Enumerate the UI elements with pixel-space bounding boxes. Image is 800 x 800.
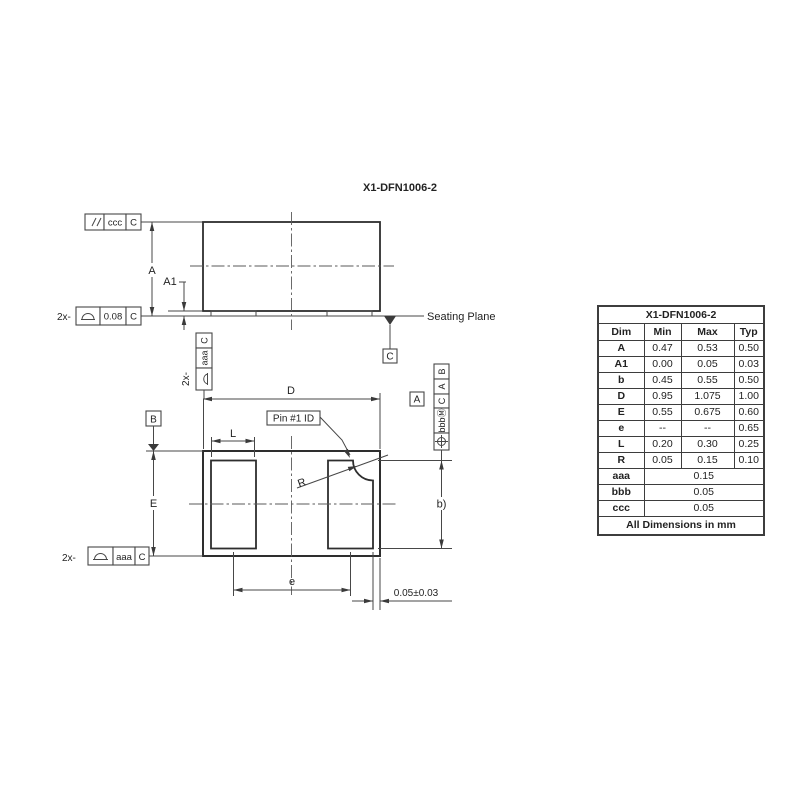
- datum-b-triangle: [148, 444, 159, 451]
- drawing-page: X1-DFN1006-2 A A1: [0, 0, 800, 800]
- datum-c-label: C: [386, 352, 393, 363]
- fcf-profile-seating-tol: 0.08: [104, 312, 123, 323]
- dimension-a: A: [145, 222, 159, 316]
- fcf-parallelism: ccc C: [85, 214, 141, 230]
- cell-min: 0.00: [644, 357, 681, 373]
- table-row: A1 0.00 0.05 0.03: [598, 357, 764, 373]
- dim-label-a1: A1: [163, 276, 176, 288]
- terminal-2-pad-with-pin1-notch: [328, 461, 373, 549]
- cell-dim: E: [598, 405, 644, 421]
- cell-min: 0.20: [644, 437, 681, 453]
- table-row: L 0.20 0.30 0.25: [598, 437, 764, 453]
- cell-dim: b: [598, 373, 644, 389]
- cell-typ: 0.50: [734, 373, 764, 389]
- fcf-parallelism-tol: ccc: [108, 218, 123, 229]
- dim-label-l: L: [230, 428, 236, 440]
- dimension-b: b): [378, 461, 452, 549]
- table-row: D 0.95 1.075 1.00: [598, 389, 764, 405]
- dim-label-b: b): [437, 499, 447, 511]
- cell-dim: R: [598, 453, 644, 469]
- cell-min: 0.47: [644, 341, 681, 357]
- cell-max: 0.675: [681, 405, 734, 421]
- cell-typ: 0.10: [734, 453, 764, 469]
- dim-label-d: D: [287, 385, 295, 397]
- fcf-position-datum1: C: [437, 397, 447, 404]
- datum-b-label: B: [150, 415, 157, 426]
- cell-max: --: [681, 421, 734, 437]
- dimension-a1: A1: [163, 276, 186, 330]
- table-title: X1-DFN1006-2: [598, 306, 764, 324]
- fcf-profile-side: 2x- aaa C: [181, 333, 212, 399]
- side-view: A A1 ccc C 2x- 0.08 C: [57, 212, 496, 363]
- col-header-typ: Typ: [734, 324, 764, 341]
- cell-dim: A: [598, 341, 644, 357]
- dimension-l: L: [212, 428, 255, 457]
- cell-typ: 0.60: [734, 405, 764, 421]
- drawing-title: X1-DFN1006-2: [363, 182, 437, 194]
- fcf-profile-bottom-count: 2x-: [62, 553, 76, 564]
- cell-tol-value: 0.05: [644, 485, 764, 501]
- table-row: R 0.05 0.15 0.10: [598, 453, 764, 469]
- seating-plane-datum: C Seating Plane: [383, 311, 496, 363]
- table-footer-row: All Dimensions in mm: [598, 517, 764, 536]
- table-header-row: Dim Min Max Typ: [598, 324, 764, 341]
- fcf-profile-seating-count: 2x-: [57, 312, 71, 323]
- side-view-extension-lines: [137, 222, 424, 316]
- fcf-profile-side-tol: aaa: [200, 350, 210, 365]
- dimension-offset: 0.05±0.03: [352, 552, 452, 610]
- table-row: e -- -- 0.65: [598, 421, 764, 437]
- cell-min: 0.55: [644, 405, 681, 421]
- cell-typ: 0.03: [734, 357, 764, 373]
- table-tolerance-row: aaa 0.15: [598, 469, 764, 485]
- dim-label-pitch: e: [289, 576, 295, 588]
- table-tolerance-row: bbb 0.05: [598, 485, 764, 501]
- terminal-1-pad: [211, 461, 256, 549]
- dim-label-e-body: E: [150, 498, 157, 510]
- bottom-view: 2x- aaa C D A Pin #1 ID: [62, 333, 452, 610]
- fcf-position-tol: bbbⓂ: [437, 408, 447, 432]
- dim-label-offset: 0.05±0.03: [394, 588, 439, 599]
- cell-typ: 0.65: [734, 421, 764, 437]
- col-header-max: Max: [681, 324, 734, 341]
- cell-dim: L: [598, 437, 644, 453]
- col-header-dim: Dim: [598, 324, 644, 341]
- cell-dim: bbb: [598, 485, 644, 501]
- col-header-min: Min: [644, 324, 681, 341]
- dimension-table: X1-DFN1006-2 Dim Min Max Typ A 0.47 0.53…: [597, 305, 765, 536]
- fcf-profile-bottom-tol: aaa: [116, 552, 133, 563]
- cell-min: --: [644, 421, 681, 437]
- cell-min: 0.45: [644, 373, 681, 389]
- fcf-profile-seating-datum: C: [130, 312, 137, 323]
- fcf-parallelism-datum: C: [130, 218, 137, 229]
- dimension-e-datum-b: B E: [146, 411, 203, 556]
- fcf-position-datum3: B: [437, 368, 447, 374]
- cell-max: 0.53: [681, 341, 734, 357]
- cell-min: 0.05: [644, 453, 681, 469]
- fcf-position-datum2: A: [437, 383, 447, 389]
- cell-max: 0.55: [681, 373, 734, 389]
- cell-min: 0.95: [644, 389, 681, 405]
- cell-max: 1.075: [681, 389, 734, 405]
- fcf-position: B A C bbbⓂ: [434, 364, 449, 461]
- cell-typ: 0.50: [734, 341, 764, 357]
- cell-typ: 1.00: [734, 389, 764, 405]
- cell-dim: e: [598, 421, 644, 437]
- fcf-profile-side-datum: C: [200, 337, 210, 344]
- fcf-profile-bottom: 2x- aaa C: [62, 547, 149, 565]
- cell-max: 0.15: [681, 453, 734, 469]
- table-row: b 0.45 0.55 0.50: [598, 373, 764, 389]
- cell-dim: aaa: [598, 469, 644, 485]
- table-title-row: X1-DFN1006-2: [598, 306, 764, 324]
- cell-dim: ccc: [598, 501, 644, 517]
- seating-datum-triangle: [384, 316, 396, 325]
- fcf-profile-seating: 2x- 0.08 C: [57, 307, 141, 325]
- datum-a-label: A: [414, 395, 421, 406]
- table-footer: All Dimensions in mm: [598, 517, 764, 536]
- fcf-profile-bottom-datum: C: [139, 552, 146, 563]
- cell-tol-value: 0.15: [644, 469, 764, 485]
- cell-max: 0.05: [681, 357, 734, 373]
- table-tolerance-row: ccc 0.05: [598, 501, 764, 517]
- dim-label-a: A: [148, 265, 156, 277]
- cell-dim: A1: [598, 357, 644, 373]
- cell-dim: D: [598, 389, 644, 405]
- seating-plane-label: Seating Plane: [427, 311, 496, 323]
- cell-max: 0.30: [681, 437, 734, 453]
- pin1-label: Pin #1 ID: [273, 414, 314, 425]
- cell-typ: 0.25: [734, 437, 764, 453]
- dimension-e-pitch: e: [234, 552, 351, 596]
- fcf-profile-side-count: 2x-: [181, 372, 192, 386]
- table-row: A 0.47 0.53 0.50: [598, 341, 764, 357]
- table-row: E 0.55 0.675 0.60: [598, 405, 764, 421]
- cell-tol-value: 0.05: [644, 501, 764, 517]
